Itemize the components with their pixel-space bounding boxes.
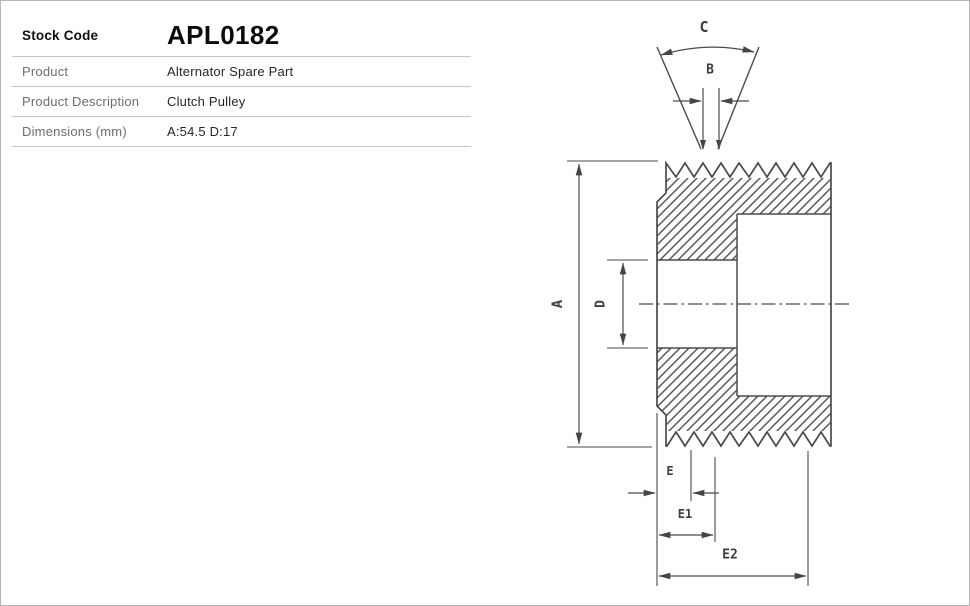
dimension-label-e1: E1 xyxy=(678,507,692,521)
groove-detail: C B xyxy=(657,18,759,150)
dimension-label-a: A xyxy=(550,299,566,308)
product-spec-sheet: Stock Code APL0182 Product Alternator Sp… xyxy=(0,0,970,606)
dimension-label-d: D xyxy=(594,300,609,308)
dimension-label-b: B xyxy=(706,63,714,78)
pitch-lines xyxy=(703,88,719,149)
dimension-label-c: C xyxy=(699,18,708,36)
dimension-label-e2: E2 xyxy=(722,548,738,563)
dimension-label-e: E xyxy=(666,464,673,478)
angle-arc xyxy=(661,47,754,55)
pulley-technical-drawing: C B A D E E1 E2 xyxy=(1,1,970,606)
